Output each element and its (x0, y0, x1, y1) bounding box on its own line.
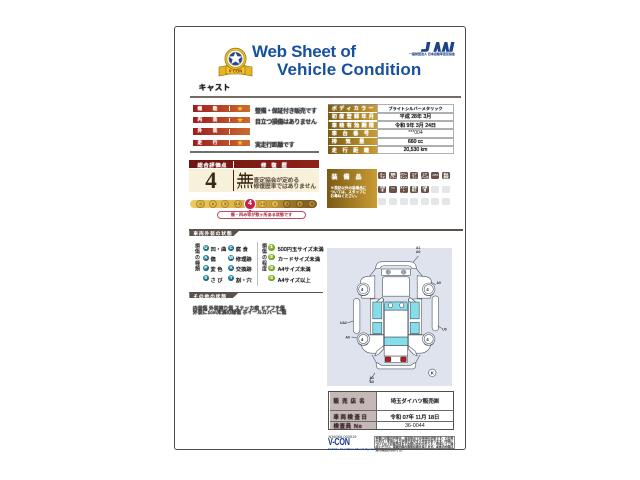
svg-text:U0: U0 (442, 328, 446, 332)
svg-text:A0: A0 (437, 281, 441, 285)
svg-text:A0: A0 (416, 250, 420, 254)
svg-text:A0: A0 (370, 380, 374, 384)
svg-text:UA2: UA2 (340, 321, 347, 325)
svg-text:A0: A0 (346, 336, 350, 340)
svg-text:V·CON: V·CON (229, 69, 243, 74)
